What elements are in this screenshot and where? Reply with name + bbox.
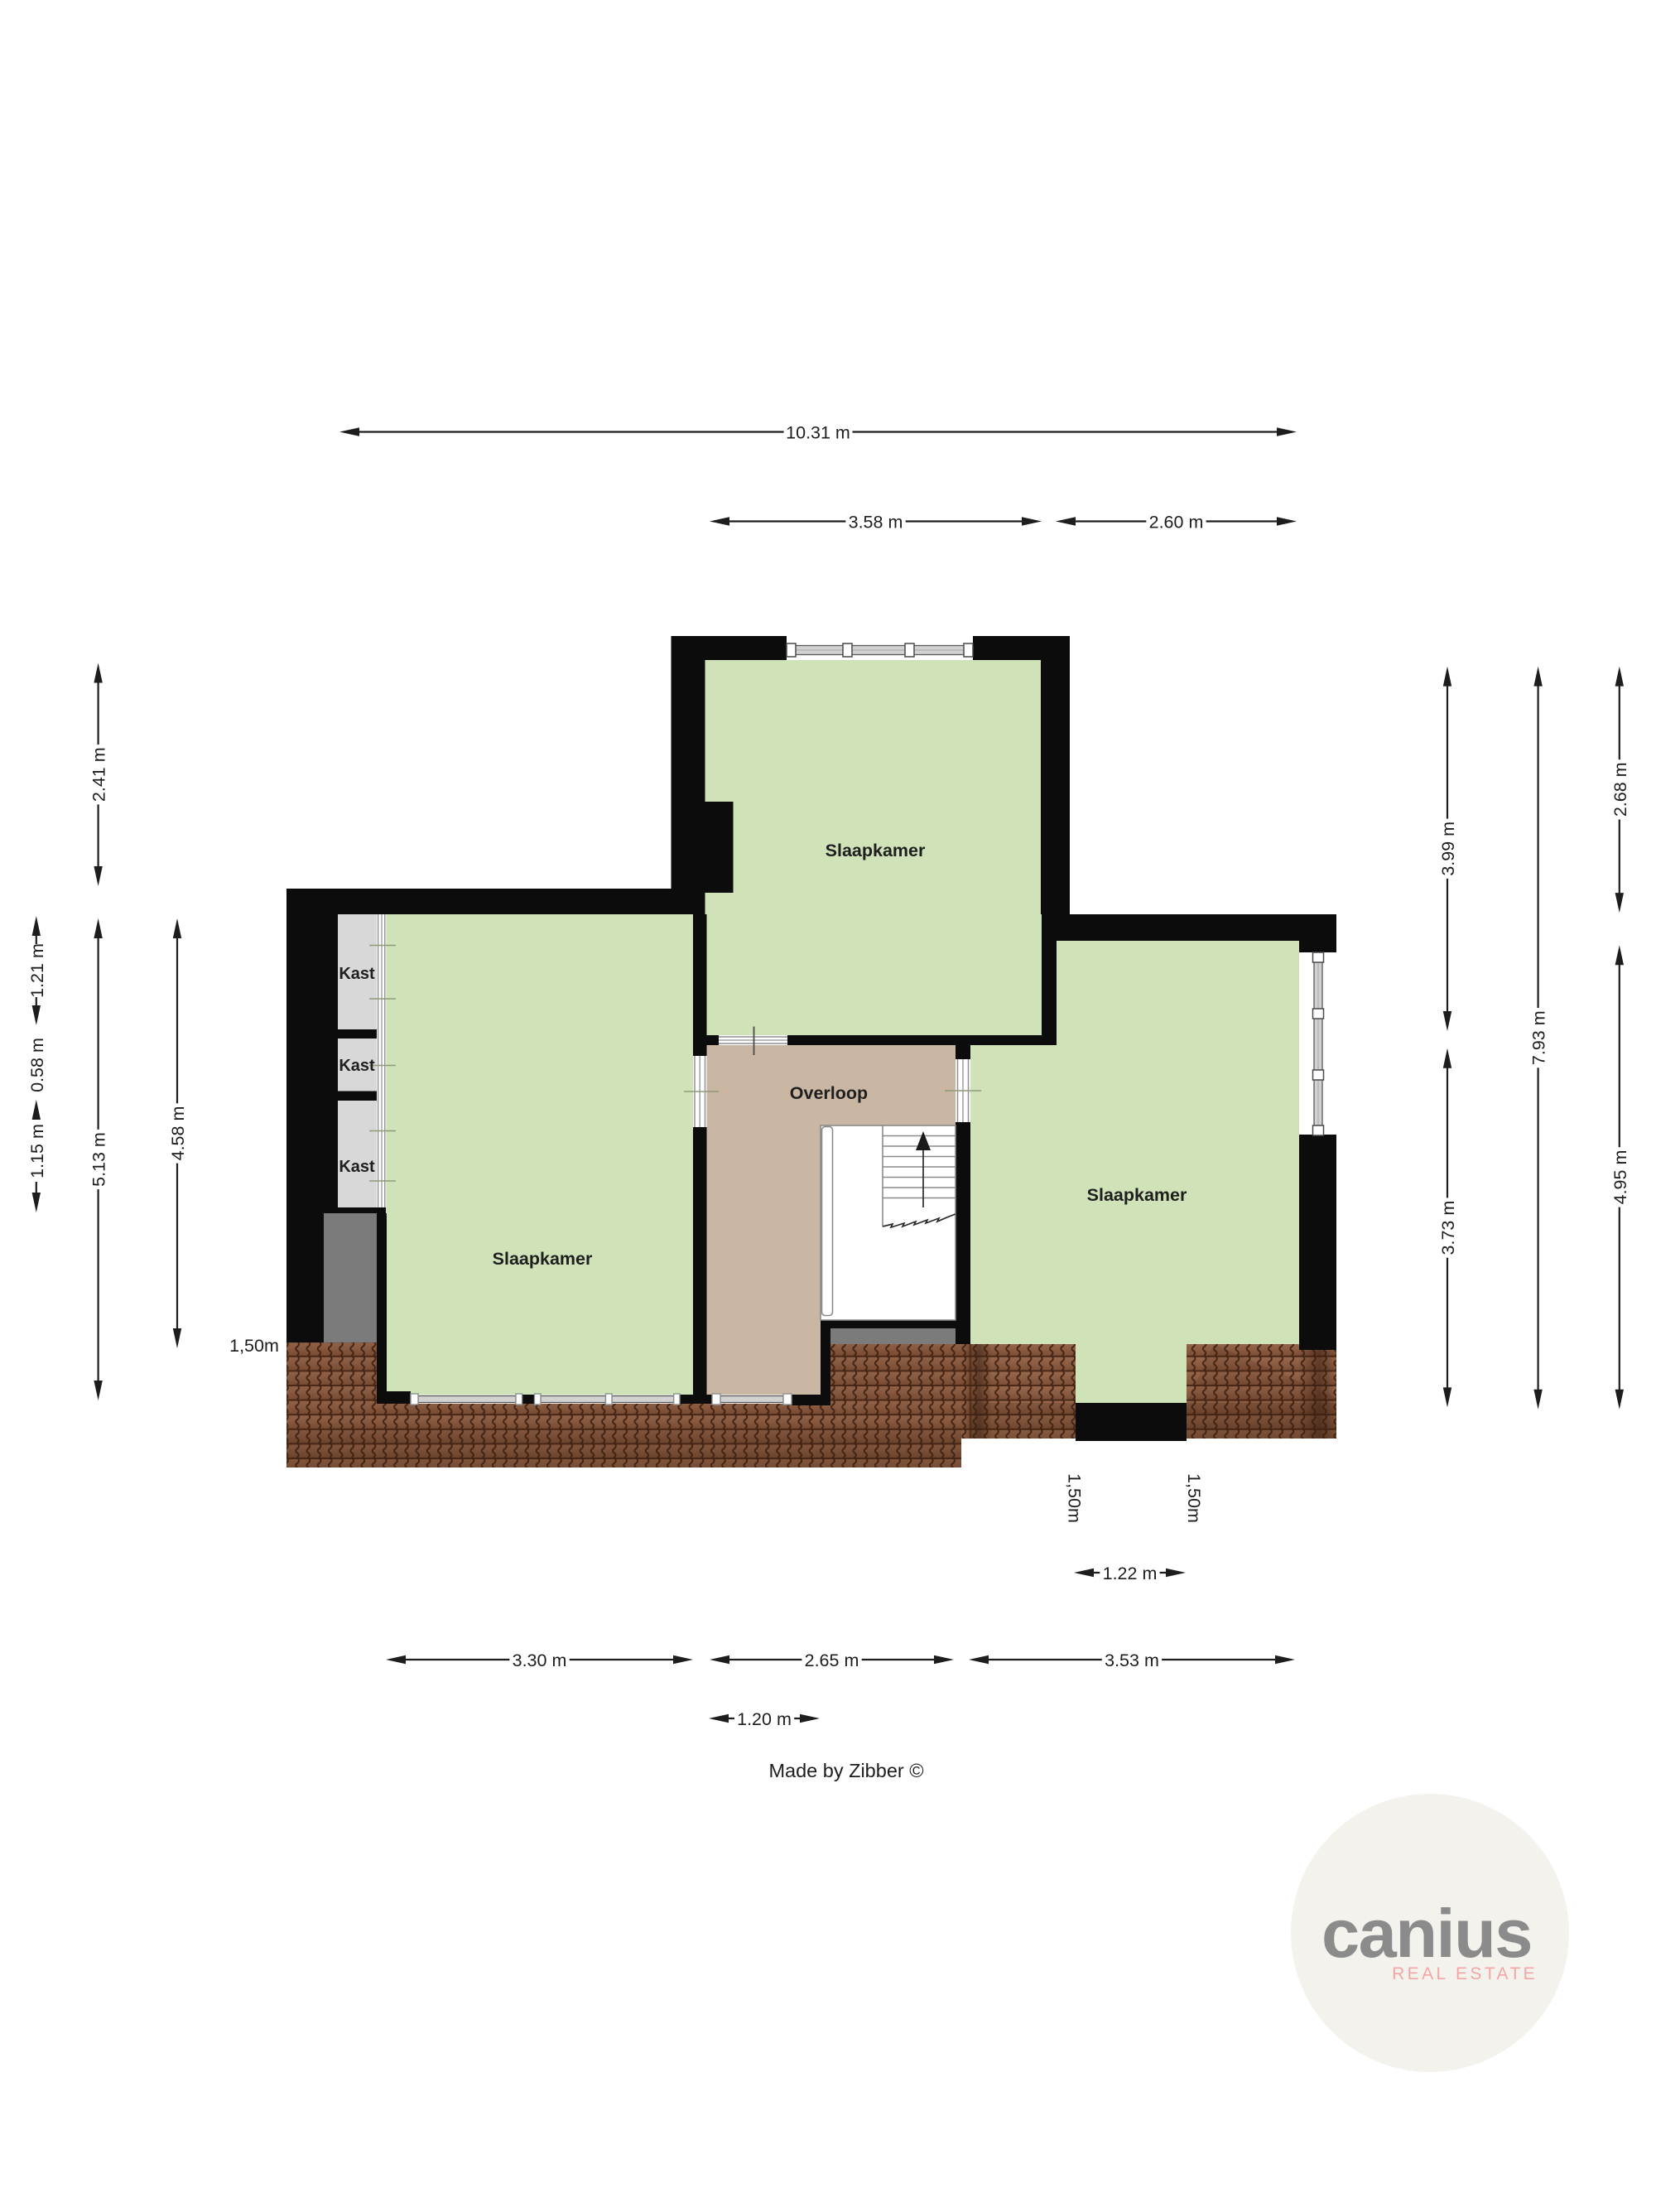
svg-text:Kast: Kast bbox=[339, 965, 375, 983]
svg-text:Kast: Kast bbox=[339, 1057, 375, 1075]
svg-text:1.21 m: 1.21 m bbox=[27, 943, 47, 998]
svg-text:Slaapkamer: Slaapkamer bbox=[493, 1249, 593, 1269]
svg-text:1.20 m: 1.20 m bbox=[737, 1709, 792, 1729]
svg-text:1,50m: 1,50m bbox=[1065, 1473, 1085, 1523]
svg-text:2.68 m: 2.68 m bbox=[1610, 762, 1630, 817]
svg-text:2.41 m: 2.41 m bbox=[89, 747, 109, 802]
svg-text:2.60 m: 2.60 m bbox=[1149, 513, 1204, 533]
svg-text:Made by Zibber ©: Made by Zibber © bbox=[768, 1760, 923, 1781]
svg-text:Overloop: Overloop bbox=[790, 1083, 868, 1103]
svg-text:1.15 m: 1.15 m bbox=[27, 1124, 47, 1178]
svg-text:Kast: Kast bbox=[339, 1158, 375, 1176]
svg-text:5.13 m: 5.13 m bbox=[89, 1132, 109, 1187]
svg-text:4.95 m: 4.95 m bbox=[1610, 1150, 1630, 1205]
svg-text:0.58 m: 0.58 m bbox=[27, 1038, 47, 1092]
svg-text:3.99 m: 3.99 m bbox=[1438, 822, 1458, 876]
svg-text:1.22 m: 1.22 m bbox=[1103, 1564, 1158, 1583]
svg-text:3.30 m: 3.30 m bbox=[513, 1651, 567, 1670]
svg-text:1,50m: 1,50m bbox=[229, 1336, 279, 1356]
svg-text:Slaapkamer: Slaapkamer bbox=[1087, 1185, 1187, 1205]
svg-text:2.65 m: 2.65 m bbox=[805, 1651, 859, 1670]
svg-text:3.53 m: 3.53 m bbox=[1105, 1651, 1159, 1670]
svg-text:3.58 m: 3.58 m bbox=[849, 513, 903, 533]
svg-text:1,50m: 1,50m bbox=[1184, 1473, 1204, 1523]
svg-text:REAL ESTATE: REAL ESTATE bbox=[1392, 1964, 1538, 1983]
svg-text:4.58 m: 4.58 m bbox=[168, 1106, 188, 1161]
svg-text:3.73 m: 3.73 m bbox=[1438, 1201, 1458, 1255]
svg-text:10.31 m: 10.31 m bbox=[786, 423, 850, 443]
svg-text:7.93 m: 7.93 m bbox=[1529, 1010, 1549, 1065]
svg-text:canius: canius bbox=[1321, 1895, 1532, 1972]
svg-text:Slaapkamer: Slaapkamer bbox=[826, 841, 926, 860]
